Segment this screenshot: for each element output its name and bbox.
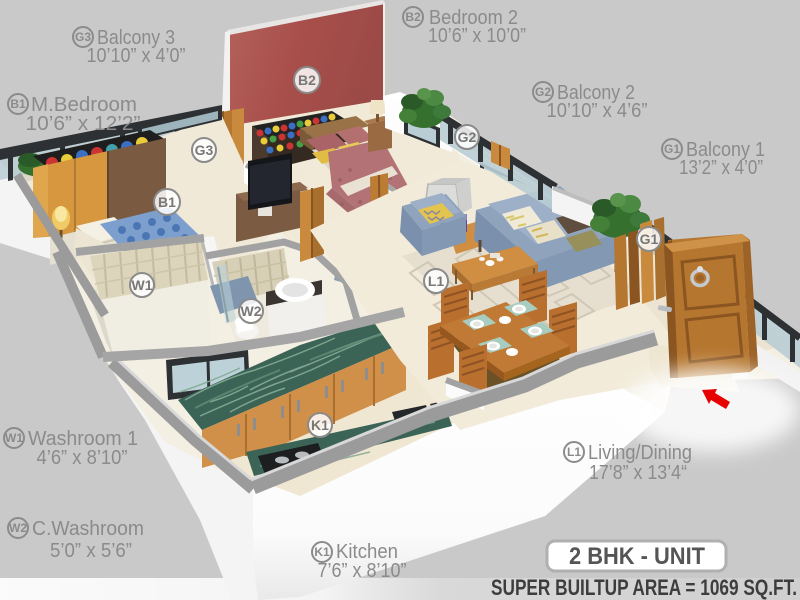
svg-text:G1: G1 [664, 142, 680, 156]
svg-text:SUPER BUILTUP AREA = 1069 SQ.F: SUPER BUILTUP AREA = 1069 SQ.FT. [491, 575, 797, 600]
svg-text:B1: B1 [10, 97, 26, 111]
svg-text:10’10” x 4’0”: 10’10” x 4’0” [87, 45, 186, 67]
svg-text:10’6” x 10’0”: 10’6” x 10’0” [428, 25, 526, 47]
svg-text:5’0” x 5’6”: 5’0” x 5’6” [50, 540, 132, 562]
svg-text:Living/Dining: Living/Dining [588, 442, 692, 464]
svg-text:7’6” x 8’10”: 7’6” x 8’10” [318, 560, 407, 582]
svg-text:L1: L1 [428, 273, 445, 289]
svg-text:G3: G3 [75, 30, 91, 44]
svg-text:10’6” x 12’2”: 10’6” x 12’2” [26, 113, 141, 135]
svg-text:W2: W2 [9, 521, 27, 535]
svg-text:G2: G2 [535, 85, 551, 99]
svg-text:B2: B2 [298, 72, 316, 88]
svg-text:B1: B1 [158, 194, 176, 210]
svg-text:L1: L1 [567, 445, 581, 459]
svg-text:B2: B2 [405, 10, 421, 24]
svg-text:G2: G2 [458, 129, 477, 145]
svg-text:W1: W1 [132, 277, 153, 293]
svg-text:4’6” x 8’10”: 4’6” x 8’10” [37, 447, 128, 469]
svg-text:G1: G1 [640, 231, 659, 247]
svg-text:13’2” x 4’0”: 13’2” x 4’0” [679, 157, 763, 179]
svg-text:2 BHK - UNIT: 2 BHK - UNIT [569, 543, 705, 570]
svg-text:17’8” x 13’4“: 17’8” x 13’4“ [589, 462, 687, 484]
svg-text:10’10” x 4’6”: 10’10” x 4’6” [547, 100, 648, 122]
svg-text:W2: W2 [241, 303, 262, 319]
svg-text:K1: K1 [314, 545, 330, 559]
svg-text:C.Washroom: C.Washroom [32, 518, 144, 540]
svg-text:W1: W1 [5, 431, 23, 445]
svg-text:G3: G3 [195, 142, 214, 158]
svg-text:K1: K1 [311, 417, 329, 433]
